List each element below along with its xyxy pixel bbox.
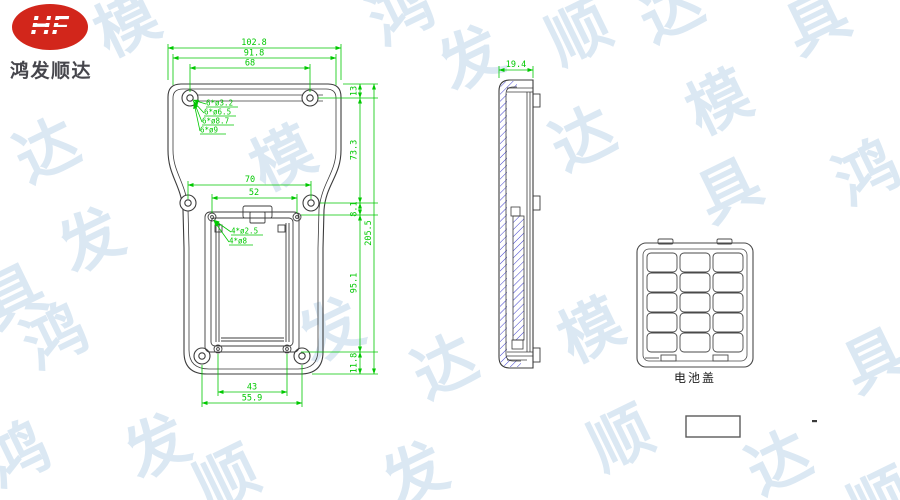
cover-grip-grid: [647, 253, 743, 352]
side-clip-bottom: [533, 348, 540, 362]
dim-overall-width: 102.8: [241, 38, 267, 48]
company-logo: HF 鸿发顺达: [10, 4, 120, 83]
cover-notch: [661, 355, 676, 361]
misc-marks: [686, 416, 817, 437]
callout-mid-2: 4*ø8: [229, 237, 248, 246]
cover-notch: [713, 355, 728, 361]
side-clip-mid: [533, 196, 540, 210]
logo-text: HF: [30, 10, 69, 42]
logo-stripe: [24, 27, 76, 30]
battery-latch: [250, 212, 265, 223]
callout-top-2: 6*ø6.5: [204, 108, 231, 117]
dim-battery-holes-width: 52: [249, 188, 259, 198]
drawing-canvas: 鸿发顺达具模具鸿达模达发具鸿鸿发顺模发达发顺达模具顺 HF 鸿发顺达: [0, 0, 900, 500]
cad-drawing: 102.8 91.8 68 13 73.3 8.1 95.1 11.8 205.…: [0, 0, 900, 500]
dim-upper-height: 73.3: [350, 140, 360, 160]
dim-inner-width: 91.8: [244, 49, 264, 59]
dim-mid-gap: 8.1: [350, 201, 360, 216]
callout-top-4: 6*ø9: [200, 126, 218, 135]
cover-outer: [637, 243, 753, 367]
dim-top-hole-offset: 13: [350, 86, 360, 96]
logo-mark: HF: [12, 4, 88, 50]
dim-bottom-width: 55.9: [242, 394, 262, 404]
dim-overall-height: 205.5: [364, 220, 374, 246]
title-block-placeholder: [686, 416, 740, 437]
battery-cover-label: 电池盖: [674, 371, 716, 385]
dim-side-width: 19.4: [506, 60, 526, 70]
dim-bottom-holes-width: 43: [247, 383, 257, 393]
dash-mark: [812, 420, 817, 422]
battery-cover-view: [637, 239, 753, 367]
logo-stripe: [24, 34, 76, 37]
dim-battery-height: 95.1: [350, 273, 360, 293]
callout-top-1: 6*ø3.2: [206, 99, 233, 108]
dim-bottom-offset: 11.8: [350, 353, 360, 373]
side-cover-panel: [513, 216, 524, 340]
side-clip-top: [533, 94, 540, 107]
cover-inner: [643, 249, 747, 361]
side-section-view: [499, 80, 540, 368]
side-dimension: 19.4: [499, 60, 533, 78]
logo-stripe: [24, 20, 76, 23]
company-name: 鸿发顺达: [10, 56, 120, 83]
callout-top-3: 6*ø8.7: [202, 117, 229, 126]
callout-mid-1: 4*ø2.5: [231, 227, 258, 236]
dim-top-holes-width: 68: [245, 59, 255, 69]
dim-mid-holes-width: 70: [245, 175, 255, 185]
